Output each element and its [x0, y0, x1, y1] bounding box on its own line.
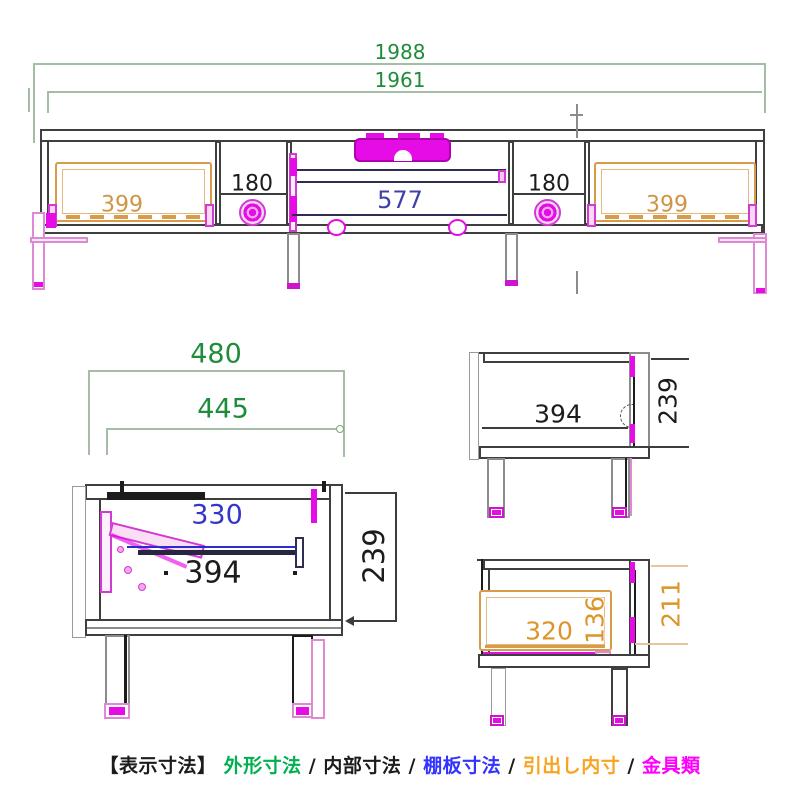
shelf-bottom-line: [296, 181, 506, 183]
center-ext-tick: [570, 114, 583, 116]
divider-1: [215, 141, 221, 225]
front-leg-2-foot: [287, 283, 300, 289]
front-leg-2: [287, 233, 300, 289]
compartment-floor-line: [292, 214, 507, 216]
drawer-leg-front-foot-pad: [615, 718, 623, 723]
cable-grommet-right: [448, 219, 467, 236]
side-front-panel: [72, 486, 86, 638]
dim-ext-left-stub: [28, 88, 30, 112]
front-leg-3: [505, 233, 518, 286]
open-interior-depth-label: 394: [534, 400, 582, 429]
front-leg-far-right-foot: [756, 288, 765, 293]
legend-prefix: 【表示寸法】: [99, 755, 216, 777]
inner-depth-label: 445: [197, 394, 249, 425]
hinge-dot-2: [138, 583, 146, 591]
left-drawer-hardware-right: [205, 204, 214, 227]
drawer-hardware-bar-bottom: [630, 617, 635, 643]
interior-depth-label: 394: [184, 556, 241, 591]
legend-sep-4: /: [627, 755, 634, 777]
shelf-pin-dot-1: [164, 571, 168, 575]
front-leg-far-left: [32, 212, 45, 290]
drawer-height-bottom-line: [635, 643, 688, 645]
drawer-height-top-line: [651, 565, 688, 567]
open-back-strip: [469, 352, 479, 460]
outer-depth-label: 480: [190, 339, 242, 370]
left-drawer-dim-label: 399: [101, 193, 143, 218]
interior-height-label: 239: [357, 528, 391, 583]
dim-ext-inner-left: [47, 91, 49, 113]
center-ext-line-bottom: [576, 271, 578, 294]
open-leg-front-foot-pad: [615, 510, 624, 515]
drawer-bottom-line: [485, 645, 605, 648]
dim-ext-left: [33, 63, 35, 143]
shelf-end-hardware: [498, 170, 506, 183]
furniture-dimension-diagram: { "title": "TV board dimension drawing",…: [0, 0, 800, 800]
open-leg-back-foot-pad: [492, 510, 501, 515]
dim-height-ext-line: [395, 492, 397, 622]
legend-internal-dims: 内部寸法: [323, 755, 401, 777]
dim-inner-depth-marker: [336, 425, 344, 433]
dim-line-inner-depth: [106, 428, 341, 430]
drawer-interior-height-label: 211: [657, 580, 686, 628]
center-bracket-notch: [394, 150, 412, 161]
right-drawer-hardware-right: [748, 204, 757, 227]
shelf-side-bar: [138, 550, 298, 555]
center-left-hardware-blob-1: [290, 158, 297, 176]
legend-shelf-dims: 棚板寸法: [423, 755, 501, 777]
dim-height-arrow: [345, 616, 354, 626]
divider-3: [508, 141, 514, 225]
legend-hardware: 金具類: [642, 755, 701, 777]
dim-ext-outer-depth-left: [88, 370, 90, 455]
shelf-side-top-line: [127, 546, 303, 548]
open-height-top-line: [651, 358, 689, 360]
hinge-dot-3: [117, 546, 124, 553]
open-hardware-bar-bottom: [630, 424, 635, 443]
drawer-depth-label: 320: [525, 617, 573, 646]
drawer-hardware-bar-top: [630, 562, 635, 583]
left-gap-shelf-line: [221, 193, 286, 195]
shelf-top-line: [296, 169, 506, 171]
front-left-corner-hardware: [46, 213, 56, 228]
dimension-legend: 【表示寸法】 外形寸法 / 内部寸法 / 棚板寸法 / 引出し内寸 / 金具類: [0, 751, 800, 778]
drawer-bottom-board: [478, 654, 650, 668]
legend-sep-2: /: [408, 755, 415, 777]
open-interior-depth-line: [482, 427, 628, 429]
drawer-leg-back-foot-pad: [493, 718, 501, 723]
center-ext-line-top: [576, 104, 578, 138]
dim-ext-outer-depth-right: [343, 370, 345, 457]
drawer-height-label: 136: [581, 596, 610, 644]
front-left-base-trim: [30, 237, 88, 243]
legend-sep-1: /: [309, 755, 316, 777]
bottom-board: [40, 224, 763, 234]
dim-ext-inner-depth-left: [106, 428, 108, 455]
open-hardware-bar-top: [630, 356, 635, 377]
shelf-depth-label: 330: [191, 500, 243, 531]
dim-height-top-line: [345, 492, 397, 494]
side-back-panel: [329, 484, 343, 636]
side-leg-back-foot-pad: [296, 707, 309, 715]
hinge-base-hardware: [100, 511, 112, 593]
side-leg-front-line: [124, 635, 127, 703]
right-drawer-dim-label: 399: [646, 193, 688, 218]
right-gap-shelf-line: [514, 193, 584, 195]
open-interior-height-label: 239: [654, 377, 683, 425]
dim-ext-right: [764, 63, 766, 113]
side-top-tick-1: [120, 481, 124, 492]
shelf-side-end-bracket: [295, 537, 304, 568]
right-drawer-hardware-left: [587, 204, 596, 227]
side-back-hardware-bar: [311, 489, 317, 523]
drawer-top-board: [483, 559, 650, 570]
dim-inner-width-label: 1961: [375, 68, 426, 92]
side-bottom-board-line: [87, 627, 341, 629]
open-top-board: [483, 352, 650, 363]
open-height-bottom-line: [644, 446, 689, 448]
side-leg-back-cover: [311, 639, 325, 719]
cable-grommet-left: [327, 219, 346, 236]
left-knob-hardware-icon: [239, 199, 266, 226]
dim-line-outer-depth: [88, 370, 344, 372]
front-right-base-trim: [718, 237, 767, 243]
side-top-tick-2: [322, 481, 326, 492]
front-leg-far-left-foot: [34, 282, 43, 287]
right-knob-hardware-icon: [534, 199, 561, 226]
dim-overall-width-label: 1988: [375, 40, 426, 64]
side-leg-front-foot-pad: [109, 707, 125, 715]
front-leg-3-foot: [505, 280, 518, 286]
open-leg-front-magenta-line: [630, 458, 632, 516]
legend-drawer-dims: 引出し内寸: [523, 755, 621, 777]
dim-height-bottom-line: [352, 620, 397, 622]
shelf-pin-dot-2: [293, 571, 297, 575]
legend-sep-3: /: [508, 755, 515, 777]
open-leg-front-line: [625, 458, 627, 513]
shelf-dim-label: 577: [377, 186, 423, 214]
center-left-hardware-blob-2: [290, 196, 297, 222]
hinge-dot-1: [124, 566, 132, 574]
legend-outer-dims: 外形寸法: [224, 755, 302, 777]
